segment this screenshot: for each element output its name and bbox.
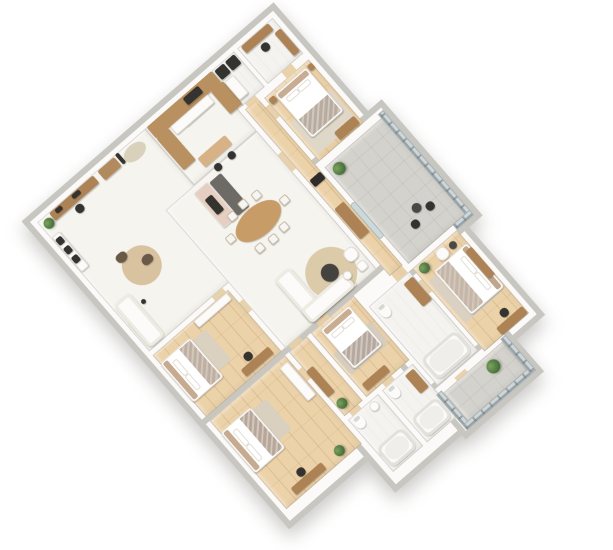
floorplan-rotated-canvas [30, 0, 584, 550]
floorplan-3d-render [0, 0, 613, 550]
